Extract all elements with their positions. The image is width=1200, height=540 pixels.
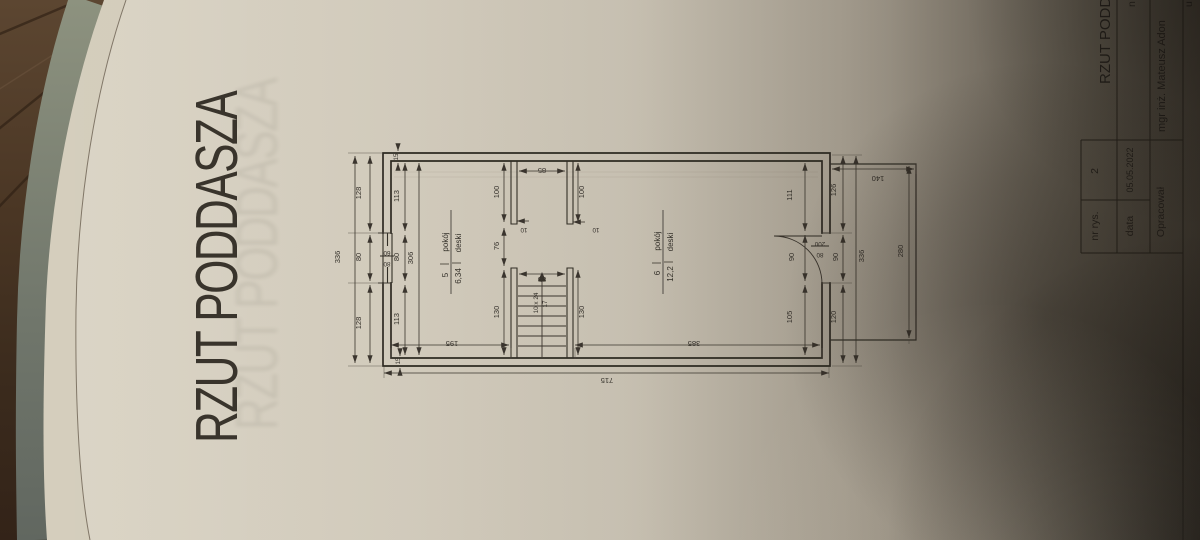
scene: RZUT PODDASZA RZUT PODDASZA 10 x 24 17 xyxy=(0,0,1200,540)
lighting-overlays xyxy=(0,0,1200,540)
photo-of-floor-plan-sheet: RZUT PODDASZA RZUT PODDASZA 10 x 24 17 xyxy=(0,0,1200,540)
light-patch-bottom xyxy=(740,300,1200,540)
